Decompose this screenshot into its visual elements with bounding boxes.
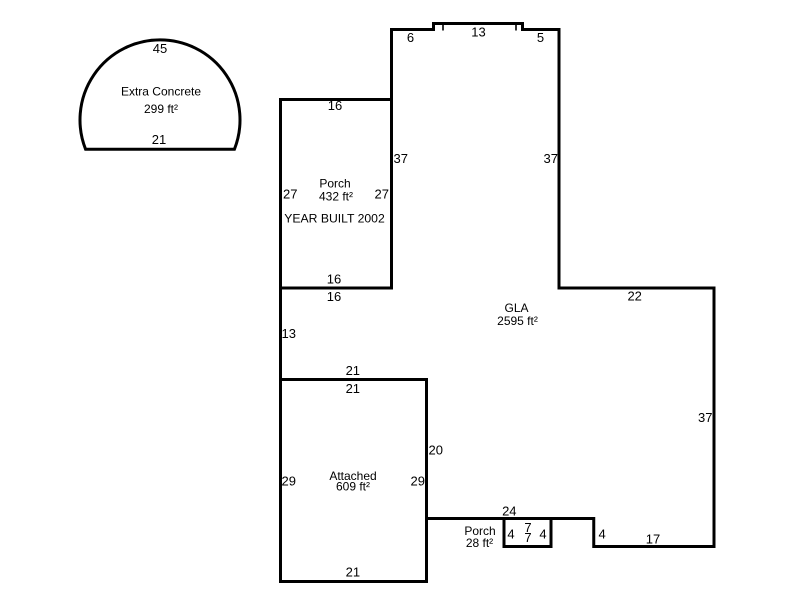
svg-text:45: 45 [153, 41, 167, 56]
svg-text:GLA: GLA [504, 301, 528, 315]
svg-text:21: 21 [346, 363, 360, 378]
svg-text:4: 4 [599, 526, 606, 541]
svg-text:609 ft²: 609 ft² [336, 480, 370, 494]
svg-text:21: 21 [152, 132, 166, 147]
svg-text:37: 37 [698, 410, 712, 425]
svg-text:432 ft²: 432 ft² [319, 190, 353, 204]
svg-text:29: 29 [282, 474, 296, 489]
svg-text:27: 27 [283, 187, 297, 202]
svg-text:2595 ft²: 2595 ft² [497, 314, 538, 328]
svg-text:7: 7 [524, 530, 531, 545]
svg-text:27: 27 [375, 187, 389, 202]
svg-text:24: 24 [502, 504, 516, 519]
svg-text:4: 4 [539, 526, 546, 541]
svg-text:4: 4 [507, 526, 514, 541]
svg-text:20: 20 [429, 442, 443, 457]
svg-text:37: 37 [544, 151, 558, 166]
svg-text:13: 13 [282, 326, 296, 341]
svg-text:22: 22 [627, 289, 641, 304]
svg-text:Porch: Porch [319, 177, 350, 191]
svg-text:13: 13 [471, 25, 485, 40]
svg-text:16: 16 [328, 98, 342, 113]
svg-text:5: 5 [537, 30, 544, 45]
svg-text:299 ft²: 299 ft² [144, 102, 178, 116]
svg-text:21: 21 [346, 565, 360, 580]
svg-text:17: 17 [646, 531, 660, 546]
svg-text:16: 16 [327, 289, 341, 304]
svg-text:YEAR BUILT 2002: YEAR BUILT 2002 [284, 212, 385, 226]
svg-text:16: 16 [327, 272, 341, 287]
svg-text:28 ft²: 28 ft² [466, 536, 493, 550]
svg-text:37: 37 [394, 151, 408, 166]
svg-text:21: 21 [346, 381, 360, 396]
svg-text:6: 6 [407, 30, 414, 45]
svg-text:29: 29 [411, 474, 425, 489]
svg-text:Extra Concrete: Extra Concrete [121, 85, 201, 99]
